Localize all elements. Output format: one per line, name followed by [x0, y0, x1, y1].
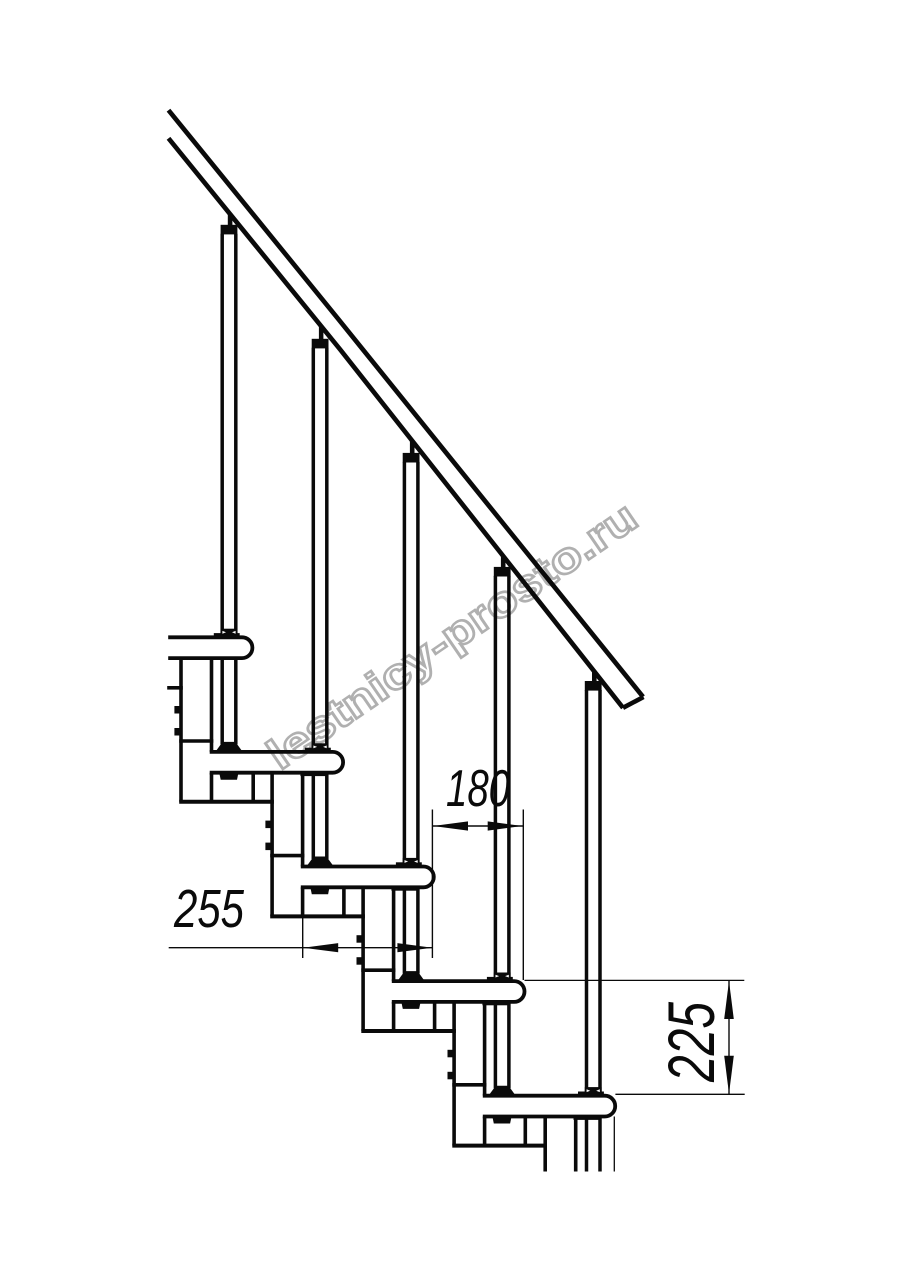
svg-text:180: 180 — [446, 760, 510, 818]
svg-text:225: 225 — [654, 1002, 728, 1083]
svg-text:255: 255 — [173, 879, 245, 939]
